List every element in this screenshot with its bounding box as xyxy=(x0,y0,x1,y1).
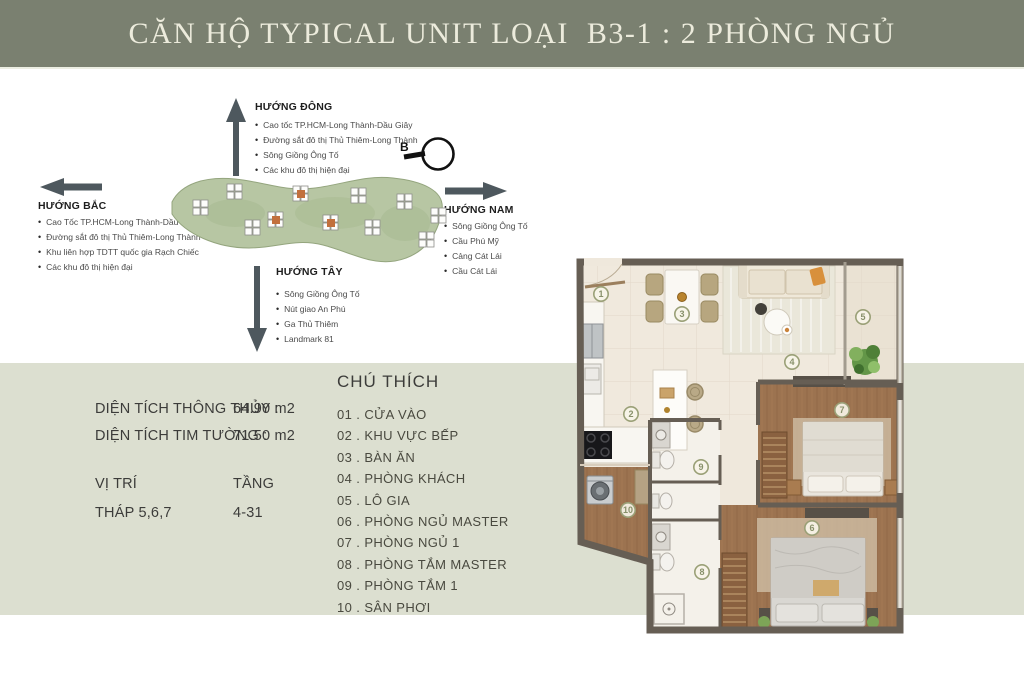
list-item: Đường sắt đô thị Thủ Thiêm-Long Thành xyxy=(255,133,418,148)
svg-text:9: 9 xyxy=(698,462,703,472)
legend-item: 01 . CỬA VÀO xyxy=(337,407,509,428)
legend-item: 03 . BÀN ĂN xyxy=(337,450,509,471)
arrow-up-icon xyxy=(226,98,246,176)
direction-south-title: HƯỚNG NAM xyxy=(444,204,514,216)
legend-title: CHÚ THÍCH xyxy=(337,372,439,392)
list-item: Nút giao An Phú xyxy=(276,302,360,317)
svg-text:7: 7 xyxy=(839,405,844,415)
side-table xyxy=(755,303,767,315)
dresser xyxy=(805,508,869,518)
living-room xyxy=(723,264,835,354)
room-badge-6: 6 xyxy=(805,521,819,535)
legend-item: 10 . SÂN PHƠI xyxy=(337,600,509,621)
nightstand xyxy=(787,480,801,495)
direction-east-title: HƯỚNG ĐÔNG xyxy=(255,101,332,113)
legend-item: 07 . PHÒNG NGỦ 1 xyxy=(337,535,509,556)
wardrobe xyxy=(762,432,787,498)
arrow-left-icon xyxy=(40,178,102,196)
floor-value: 4-31 xyxy=(233,505,263,521)
list-item: Landmark 81 xyxy=(276,332,360,347)
site-map xyxy=(165,168,450,276)
list-item: Cầu Cát Lái xyxy=(444,264,528,279)
brochure-page: { "header": { "title": "CĂN HỘ TYPICAL U… xyxy=(0,0,1024,683)
toilet xyxy=(660,493,672,509)
pillow xyxy=(822,604,864,622)
bar-stool xyxy=(687,384,703,400)
room-badge-4: 4 xyxy=(785,355,799,369)
throw-blanket xyxy=(813,580,839,596)
legend-item: 05 . LÔ GIA xyxy=(337,493,509,514)
plant xyxy=(758,616,770,628)
room-badge-7: 7 xyxy=(835,403,849,417)
direction-south-list: Sông Giồng Ông Tố Cầu Phú Mỹ Cảng Cát Lá… xyxy=(444,219,528,279)
floor-plan: 1 2 3 4 5 6 7 8 9 10 xyxy=(565,250,1020,640)
wardrobe xyxy=(722,553,747,627)
pillow xyxy=(846,476,881,492)
list-item: Sông Giồng Ông Tố xyxy=(276,287,360,302)
list-item: Cao tốc TP.HCM-Long Thành-Dầu Giây xyxy=(255,118,418,133)
legend-item: 08 . PHÒNG TẮM MASTER xyxy=(337,557,509,578)
svg-text:6: 6 xyxy=(809,523,814,533)
dining-chair xyxy=(646,301,663,322)
arrow-right-icon xyxy=(445,182,507,200)
area-gross-value: 71.50 m2 xyxy=(233,428,295,444)
area-net-value: 64.90 m2 xyxy=(233,401,295,417)
svg-text:4: 4 xyxy=(789,357,794,367)
toilet xyxy=(660,553,674,571)
room-badge-1: 1 xyxy=(594,287,608,301)
wc-nook xyxy=(652,493,672,509)
floor-label: TẦNG xyxy=(233,476,274,492)
direction-north-title: HƯỚNG BẮC xyxy=(38,200,106,212)
pillow xyxy=(776,604,818,622)
svg-text:8: 8 xyxy=(699,567,704,577)
legend-item: 04 . PHÒNG KHÁCH xyxy=(337,471,509,492)
header-banner: CĂN HỘ TYPICAL UNIT LOẠI B3-1 : 2 PHÒNG … xyxy=(0,0,1024,69)
dining-chair xyxy=(701,274,718,295)
dining-chair xyxy=(701,301,718,322)
room-badge-9: 9 xyxy=(694,460,708,474)
svg-text:1: 1 xyxy=(598,289,603,299)
svg-text:3: 3 xyxy=(679,309,684,319)
direction-west-list: Sông Giồng Ông Tố Nút giao An Phú Ga Thủ… xyxy=(276,287,360,347)
arrow-down-icon xyxy=(247,266,267,352)
svg-text:5: 5 xyxy=(860,312,865,322)
room-badge-3: 3 xyxy=(675,307,689,321)
legend-item: 09 . PHÒNG TẮM 1 xyxy=(337,578,509,599)
cabinet xyxy=(635,470,649,504)
list-item: Cảng Cát Lái xyxy=(444,249,528,264)
page-title: CĂN HỘ TYPICAL UNIT LOẠI B3-1 : 2 PHÒNG … xyxy=(128,17,895,51)
position-value: THÁP 5,6,7 xyxy=(95,505,172,521)
room-badge-8: 8 xyxy=(695,565,709,579)
room-badge-10: 10 xyxy=(621,503,635,517)
list-item: Cầu Phú Mỹ xyxy=(444,234,528,249)
svg-text:2: 2 xyxy=(628,409,633,419)
list-item: Sông Giồng Ông Tố xyxy=(444,219,528,234)
pillow xyxy=(808,476,843,492)
legend-item: 06 . PHÒNG NGỦ MASTER xyxy=(337,514,509,535)
room-badge-2: 2 xyxy=(624,407,638,421)
list-item: Sông Giồng Ông Tố xyxy=(255,148,418,163)
list-item: Ga Thủ Thiêm xyxy=(276,317,360,332)
room-badge-5: 5 xyxy=(856,310,870,324)
legend-item: 02 . KHU VỰC BẾP xyxy=(337,428,509,449)
toilet xyxy=(660,451,674,469)
dining-chair xyxy=(646,274,663,295)
position-label: VỊ TRÍ xyxy=(95,476,137,492)
svg-text:10: 10 xyxy=(623,505,633,515)
compass-label: B xyxy=(400,140,409,154)
legend-list: 01 . CỬA VÀO 02 . KHU VỰC BẾP 03 . BÀN Ă… xyxy=(337,407,509,621)
plant xyxy=(867,616,879,628)
